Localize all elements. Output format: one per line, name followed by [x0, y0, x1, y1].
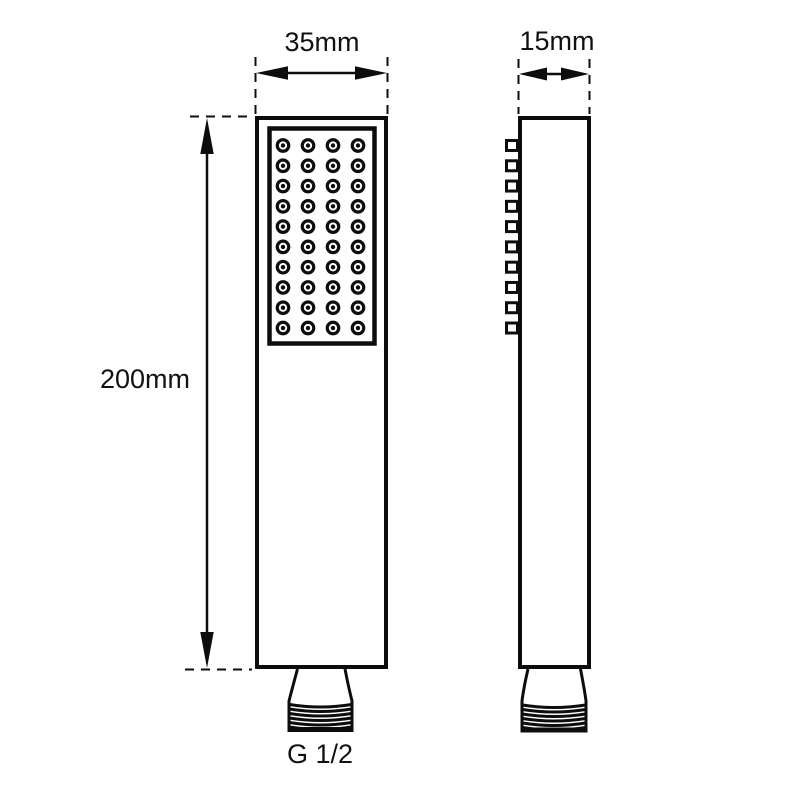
nozzle-dot [306, 306, 310, 310]
nozzle-dot [306, 285, 310, 289]
nozzle-dot [281, 204, 285, 208]
nozzle-dot [306, 164, 310, 168]
nozzle-dot [331, 224, 335, 228]
nozzle-dot [306, 184, 310, 188]
drawing-svg [0, 0, 800, 800]
nozzle-dot [281, 285, 285, 289]
nozzle-dot [356, 204, 360, 208]
arrowhead-down [200, 632, 213, 668]
side-nozzle-profiles [507, 141, 518, 334]
nozzle-dot [306, 326, 310, 330]
nozzle-dot [331, 184, 335, 188]
nozzle-dot [281, 164, 285, 168]
arrowhead-left [519, 68, 547, 81]
arrowhead-up [200, 118, 213, 154]
nozzle-dot [306, 245, 310, 249]
arrowhead-left [256, 66, 288, 80]
nozzle-dot [331, 285, 335, 289]
nozzle-profile-square [507, 141, 518, 151]
nozzle-dot [356, 164, 360, 168]
nozzle-profile-square [507, 323, 518, 333]
nozzle-profile-square [507, 282, 518, 292]
nozzle-dot [281, 245, 285, 249]
nozzle-dot [281, 143, 285, 147]
arrowhead-right [561, 68, 589, 81]
nozzle-dot [331, 204, 335, 208]
nozzle-dot [356, 265, 360, 269]
nozzle-dot [331, 265, 335, 269]
dimension-depth-side [519, 59, 590, 114]
depth-dimension-label: 15mm [482, 28, 632, 55]
nozzle-profile-square [507, 242, 518, 252]
nozzle-dot [331, 326, 335, 330]
nozzle-dot [281, 265, 285, 269]
nozzle-dot [281, 326, 285, 330]
nozzle-profile-square [507, 222, 518, 232]
arrowhead-right [355, 66, 387, 80]
height-dimension-label: 200mm [40, 366, 190, 393]
nozzle-dot [356, 285, 360, 289]
nozzle-dot [356, 224, 360, 228]
nozzle-profile-square [507, 303, 518, 313]
technical-drawing-canvas: 35mm 15mm 200mm G 1/2 [0, 0, 800, 800]
nozzle-dot [281, 184, 285, 188]
side-view [507, 118, 590, 730]
nozzle-dot [356, 245, 360, 249]
width-dimension-label: 35mm [247, 29, 397, 56]
nozzle-dot [356, 143, 360, 147]
dimension-width-front [256, 57, 388, 114]
nozzle-profile-square [507, 181, 518, 191]
nozzle-profile-square [507, 201, 518, 211]
nozzle-dot [281, 224, 285, 228]
nozzle-dot [281, 306, 285, 310]
nozzle-dot [331, 245, 335, 249]
nozzle-dot [306, 224, 310, 228]
nozzle-dot [331, 143, 335, 147]
dimension-height [185, 117, 253, 670]
nozzle-dot [331, 306, 335, 310]
nozzle-dot [306, 143, 310, 147]
thread-size-label: G 1/2 [245, 741, 395, 768]
nozzle-profile-square [507, 262, 518, 272]
nozzle-dot [331, 164, 335, 168]
nozzle-profile-square [507, 161, 518, 171]
nozzle-dot [306, 204, 310, 208]
nozzle-dot [306, 265, 310, 269]
front-view [257, 118, 386, 730]
nozzle-dot [356, 326, 360, 330]
side-body-outline [520, 118, 589, 667]
nozzle-dot [356, 306, 360, 310]
nozzle-dot [356, 184, 360, 188]
